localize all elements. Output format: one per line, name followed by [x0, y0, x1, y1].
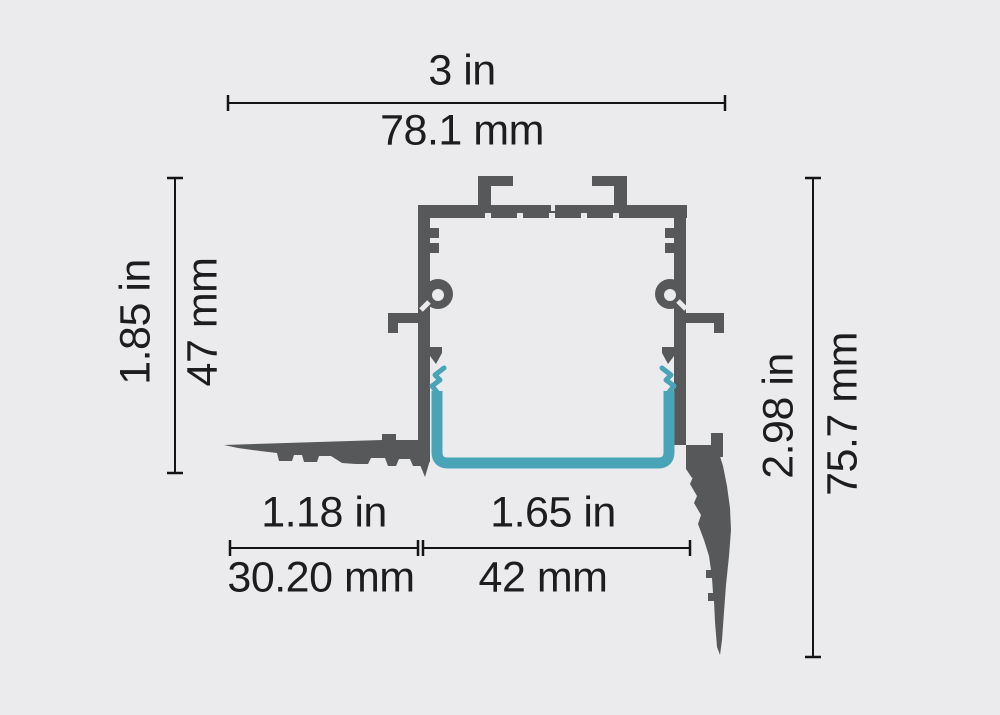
- side-hook-left: [388, 313, 418, 333]
- flange-notch: [485, 213, 491, 218]
- dim-top-inches: 3 in: [428, 50, 495, 93]
- channel-clip-left: [432, 368, 444, 392]
- channel-clip-right: [662, 368, 674, 392]
- flange-split: [551, 205, 555, 211]
- flange-notch: [549, 213, 555, 218]
- top-hook-right: [592, 176, 627, 206]
- boss-slits: [421, 301, 686, 310]
- dim-right-inches: 2.98 in: [758, 353, 801, 479]
- tooth: [430, 243, 439, 253]
- tooth: [430, 228, 439, 238]
- tooth: [665, 243, 674, 253]
- dim-bottom-right-inches: 1.65 in: [490, 492, 616, 535]
- wall-left: [418, 217, 430, 462]
- flange-notch: [517, 213, 523, 218]
- ledge-barb-right: [662, 347, 674, 364]
- dim-bottom-right-mm: 42 mm: [479, 557, 608, 600]
- extrusion-cutouts: [432, 205, 676, 301]
- led-channel-u: [437, 391, 669, 463]
- side-hook-right: [686, 313, 724, 333]
- dim-left-mm: 47 mm: [182, 258, 225, 387]
- wing-left: [224, 434, 421, 466]
- dim-bottom-left-inches: 1.18 in: [261, 492, 387, 535]
- screw-boss-hole-right: [664, 289, 676, 301]
- flange-notch: [581, 213, 587, 218]
- ledge-barb-left: [430, 347, 442, 364]
- screw-boss-hole-left: [432, 289, 444, 301]
- profile-dimension-drawing: 3 in 78.1 mm 1.85 in 47 mm 2.98 in 75.7 …: [0, 0, 1000, 715]
- wing-right: [686, 453, 731, 655]
- wall-right: [674, 217, 686, 445]
- led-channel-insert: [432, 368, 674, 463]
- dim-left-inches: 1.85 in: [115, 259, 158, 385]
- dim-top-mm: 78.1 mm: [380, 110, 544, 153]
- dim-bottom-left-mm: 30.20 mm: [227, 557, 414, 600]
- tooth: [665, 228, 674, 238]
- top-hook-left: [478, 176, 513, 206]
- flange-notch: [613, 213, 619, 218]
- dim-right-mm: 75.7 mm: [822, 332, 865, 496]
